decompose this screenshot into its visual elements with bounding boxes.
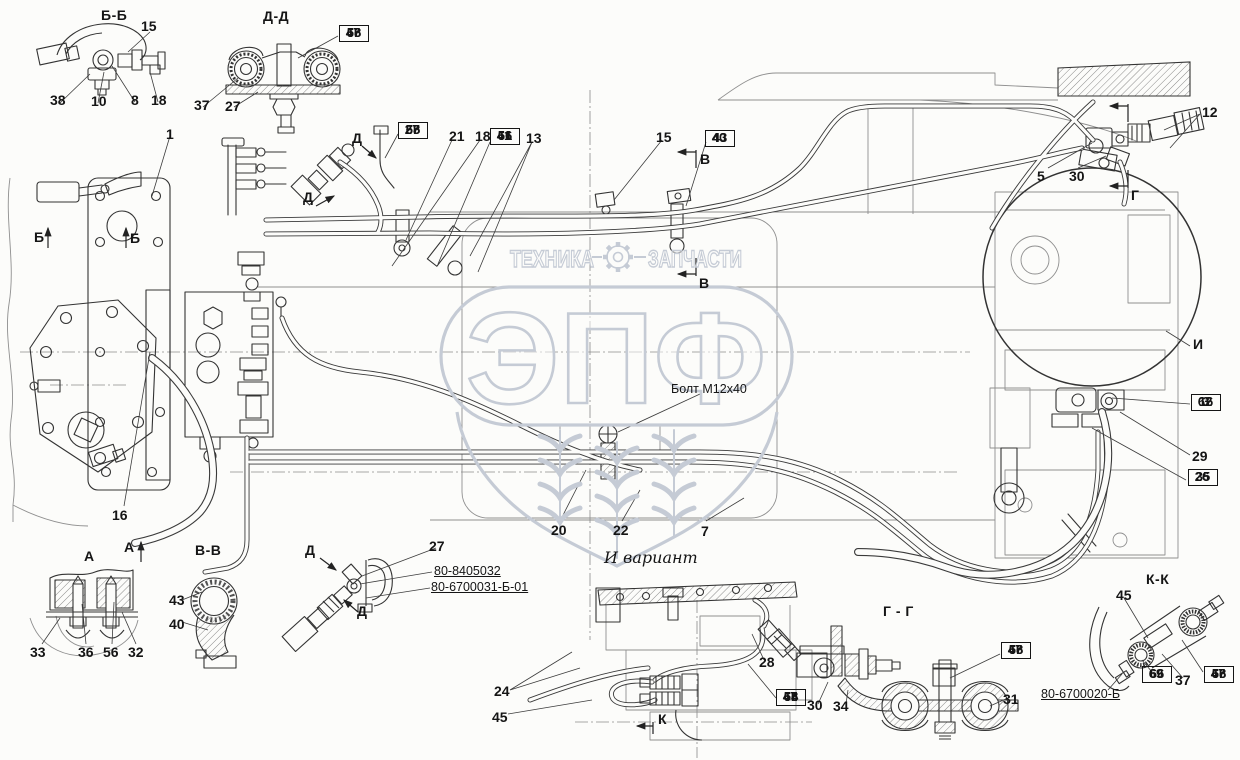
watermark-right-text: ЗАПЧАСТИ bbox=[648, 246, 742, 273]
view-gg-drawing bbox=[797, 626, 1018, 739]
parts-diagram-page: ТЕХНИКА ЗАПЧАСТИ ЭПФ Б-БД-ДАВ-ВГ - ГК-КИ… bbox=[0, 0, 1240, 760]
view-dd-drawing bbox=[226, 44, 340, 133]
variant-i-drawing bbox=[596, 582, 801, 740]
watermark-left-text: ТЕХНИКА bbox=[510, 246, 594, 273]
view-vv-drawing bbox=[191, 578, 237, 668]
diagram-line-art: ТЕХНИКА ЗАПЧАСТИ ЭПФ bbox=[0, 0, 1240, 760]
watermark-shield-text: ЭПФ bbox=[466, 285, 766, 431]
gear-icon bbox=[603, 242, 633, 272]
view-bb-drawing bbox=[37, 24, 165, 95]
watermark: ТЕХНИКА ЗАПЧАСТИ ЭПФ bbox=[441, 242, 792, 566]
view-d-fitting-drawing bbox=[282, 559, 392, 652]
view-kk-drawing bbox=[1090, 595, 1224, 690]
fender-section bbox=[1058, 62, 1190, 96]
